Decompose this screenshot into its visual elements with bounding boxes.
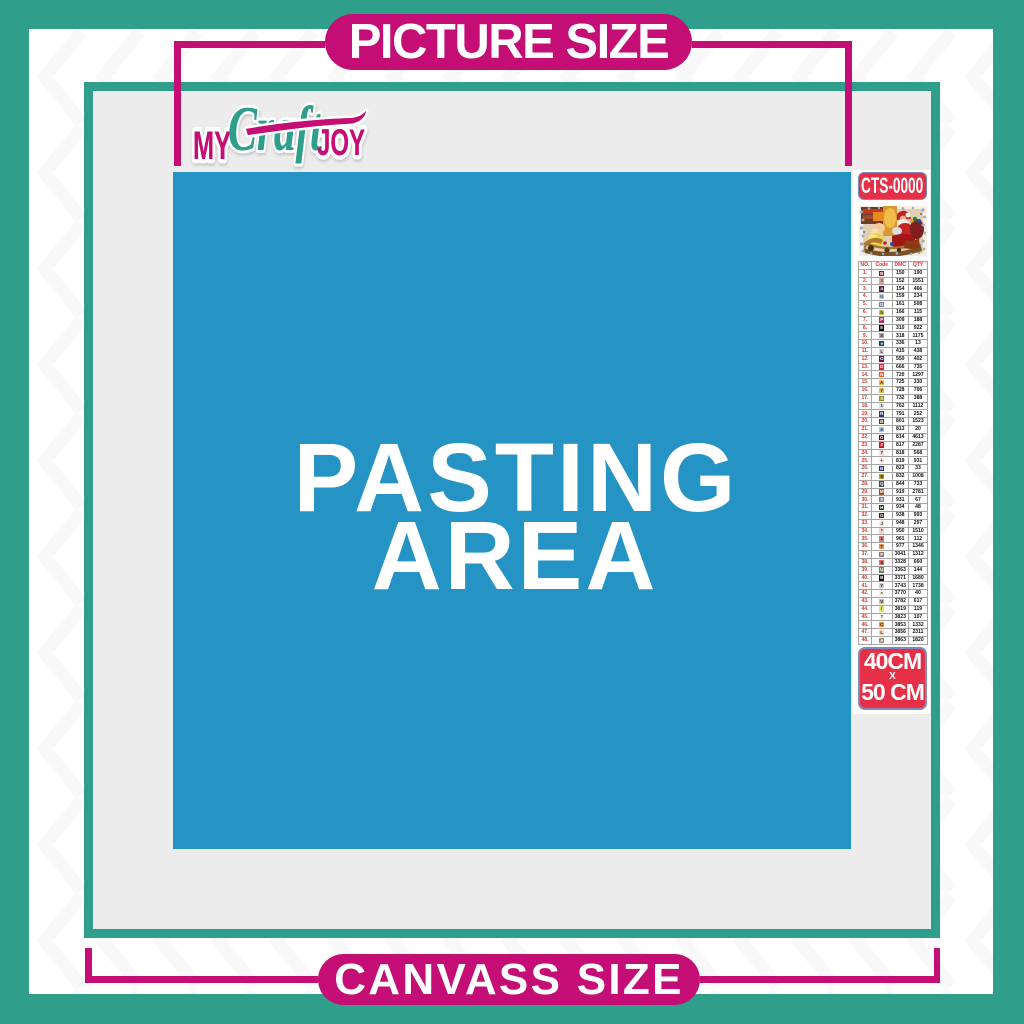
svg-text:JOY: JOY [317,122,365,163]
svg-text:MY: MY [193,124,231,168]
